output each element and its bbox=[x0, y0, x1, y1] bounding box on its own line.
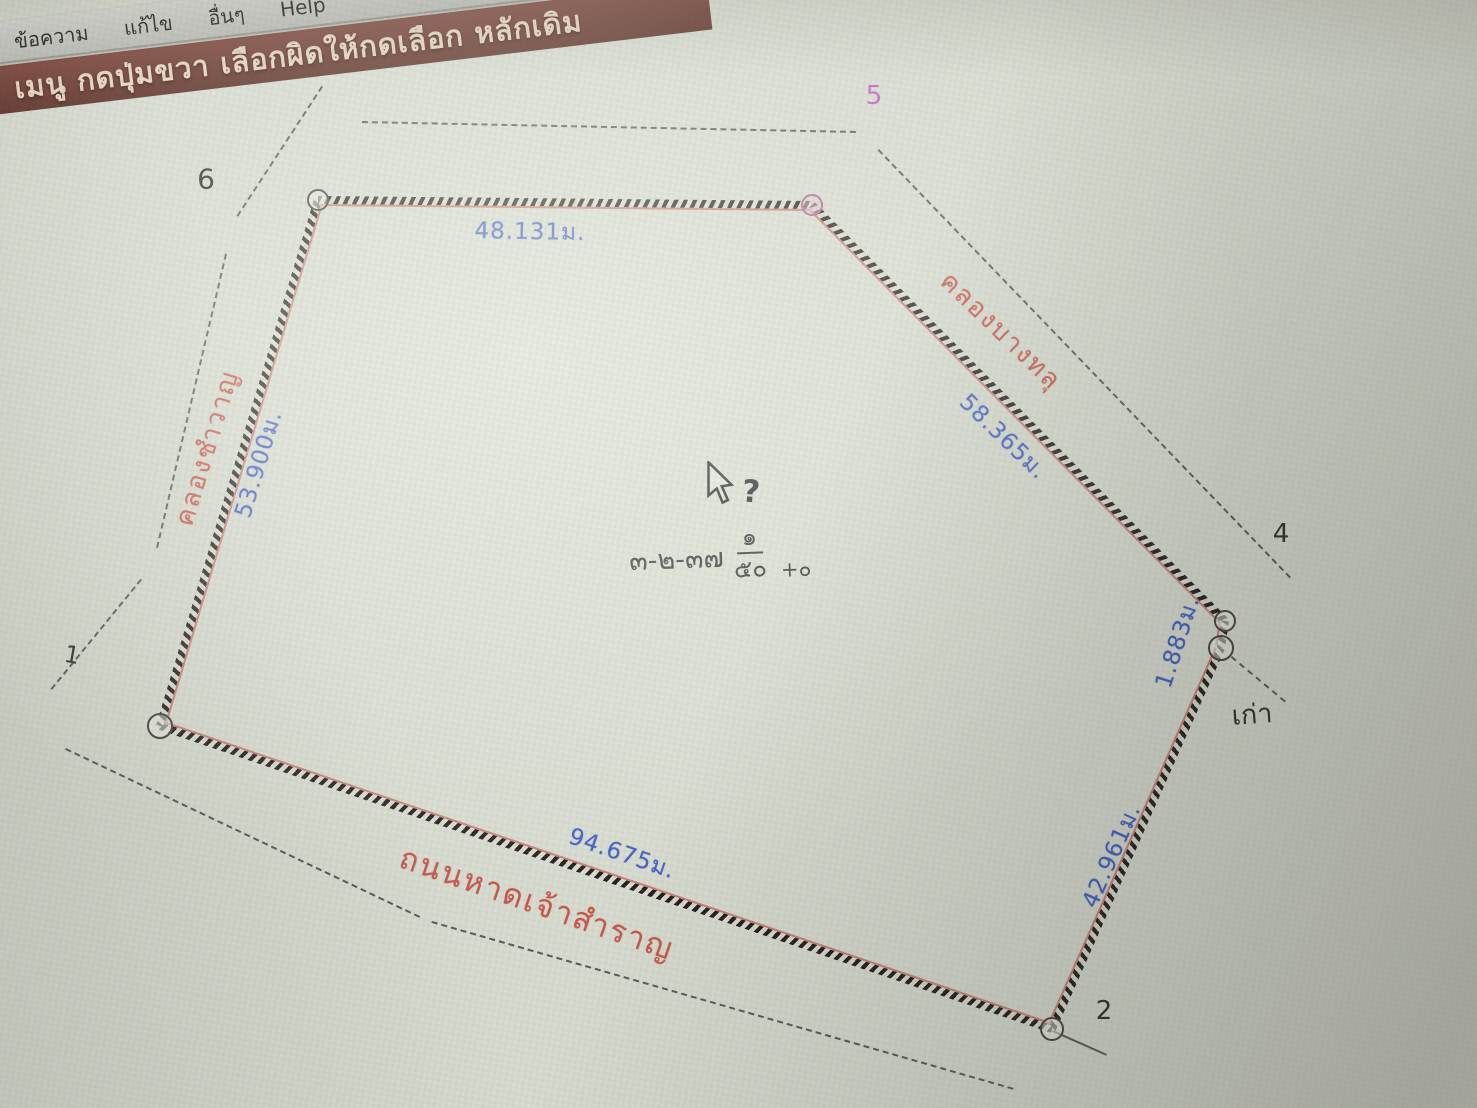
screen-photo: 48.131ม.58.365ม.1.883ม.42.961ม.94.675ม.5… bbox=[0, 0, 1477, 1108]
parcel-edge-1 bbox=[318, 196, 812, 209]
point-number-label-4: 5 bbox=[866, 81, 883, 111]
survey-drawing: 48.131ม.58.365ม.1.883ม.42.961ม.94.675ม.5… bbox=[0, 0, 1477, 1108]
point-number-label-6: เก่า bbox=[1230, 691, 1274, 737]
parcel-edge-5 bbox=[159, 722, 1054, 1033]
cursor-question-mark: ? bbox=[741, 473, 761, 510]
point-number-label-2: 2 bbox=[1096, 996, 1113, 1026]
parcel-edge-2 bbox=[809, 202, 1228, 624]
parcel-vertex-5 bbox=[1040, 1017, 1064, 1041]
point-number-label-5: 6 bbox=[197, 163, 215, 196]
dimension-label-4: 42.961ม. bbox=[1073, 798, 1151, 914]
point-number-label-3: 4 bbox=[1273, 519, 1290, 549]
parcel-vertex-6 bbox=[147, 713, 173, 739]
point-number-label-1: 1 bbox=[62, 640, 82, 670]
boundary-dashed-line-7 bbox=[878, 149, 1291, 578]
boundary-dashed-line-5 bbox=[431, 921, 1014, 1090]
boundary-dashed-line-6 bbox=[362, 121, 856, 133]
parcel-vertex-1 bbox=[307, 189, 329, 211]
boundary-dashed-line-3 bbox=[50, 579, 142, 690]
menu-item-3[interactable]: อื่นๆ bbox=[206, 0, 246, 34]
parcel-vertex-3 bbox=[1214, 610, 1236, 632]
parcel-vertex-2 bbox=[801, 194, 823, 216]
dimension-label-1: 48.131ม. bbox=[474, 213, 586, 251]
menu-item-2[interactable]: แก้ไข bbox=[122, 7, 174, 45]
boundary-dashed-line-4 bbox=[65, 748, 420, 918]
parcel-vertex-4 bbox=[1208, 635, 1234, 661]
menu-item-1[interactable]: ข้อความ bbox=[12, 17, 90, 58]
dimension-label-3: 1.883ม. bbox=[1146, 591, 1210, 693]
menu-item-4[interactable]: Help bbox=[279, 0, 327, 22]
mouse-cursor-icon bbox=[703, 461, 737, 507]
place-name-label-2: คลองบางทลุ bbox=[930, 262, 1071, 400]
